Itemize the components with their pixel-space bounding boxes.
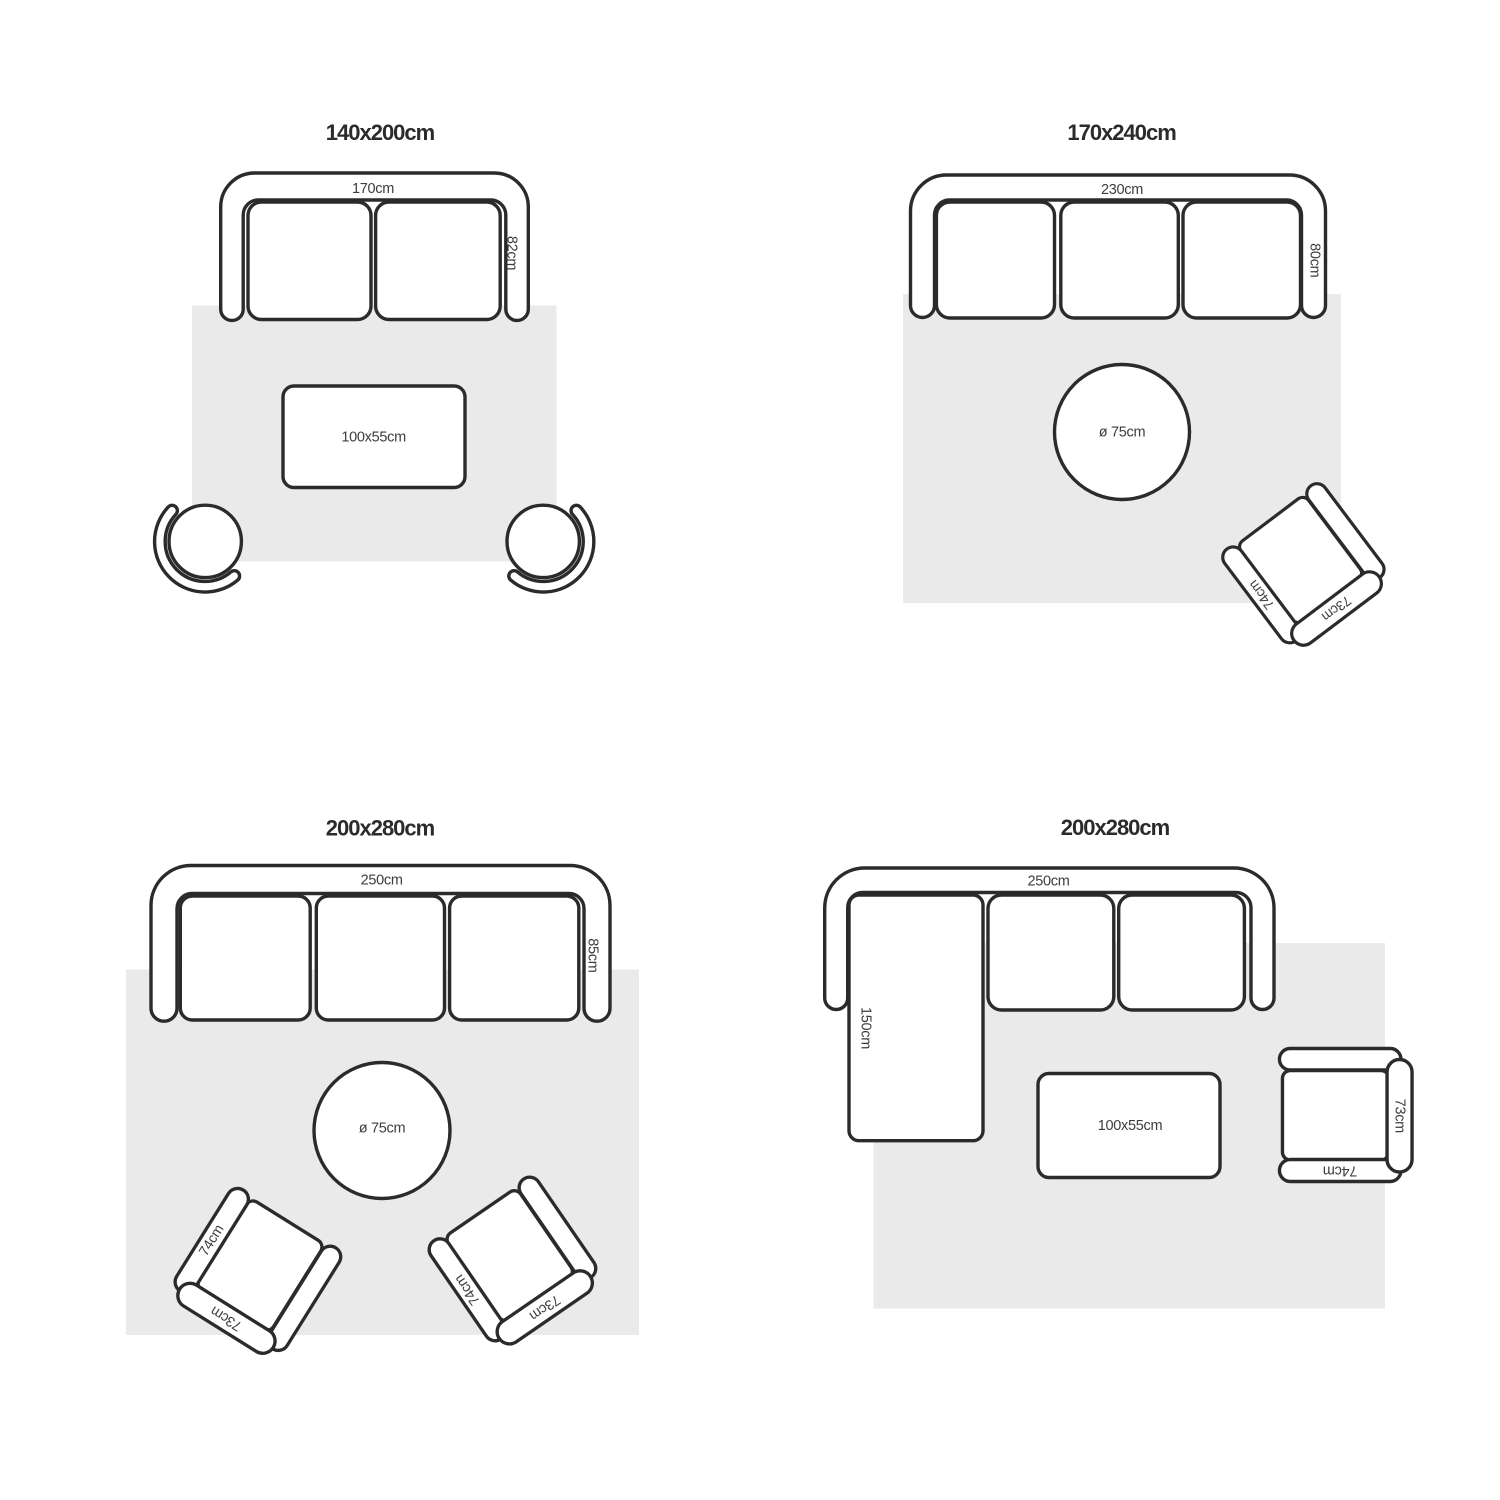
svg-text:230cm: 230cm (1101, 182, 1143, 198)
svg-text:250cm: 250cm (361, 873, 403, 889)
svg-text:82cm: 82cm (504, 236, 520, 270)
svg-text:85cm: 85cm (584, 938, 600, 972)
svg-text:80cm: 80cm (1307, 243, 1323, 277)
svg-text:100x55cm: 100x55cm (1098, 1118, 1163, 1134)
svg-text:170x240cm: 170x240cm (1067, 120, 1176, 145)
svg-text:ø 75cm: ø 75cm (1099, 425, 1146, 441)
svg-text:200x280cm: 200x280cm (326, 816, 435, 841)
svg-text:170cm: 170cm (352, 181, 394, 197)
svg-text:200x280cm: 200x280cm (1061, 815, 1170, 840)
svg-text:140x200cm: 140x200cm (326, 120, 435, 145)
svg-text:150cm: 150cm (858, 1007, 874, 1049)
svg-text:ø 75cm: ø 75cm (359, 1120, 406, 1136)
svg-text:250cm: 250cm (1027, 874, 1069, 890)
svg-text:100x55cm: 100x55cm (341, 430, 406, 446)
